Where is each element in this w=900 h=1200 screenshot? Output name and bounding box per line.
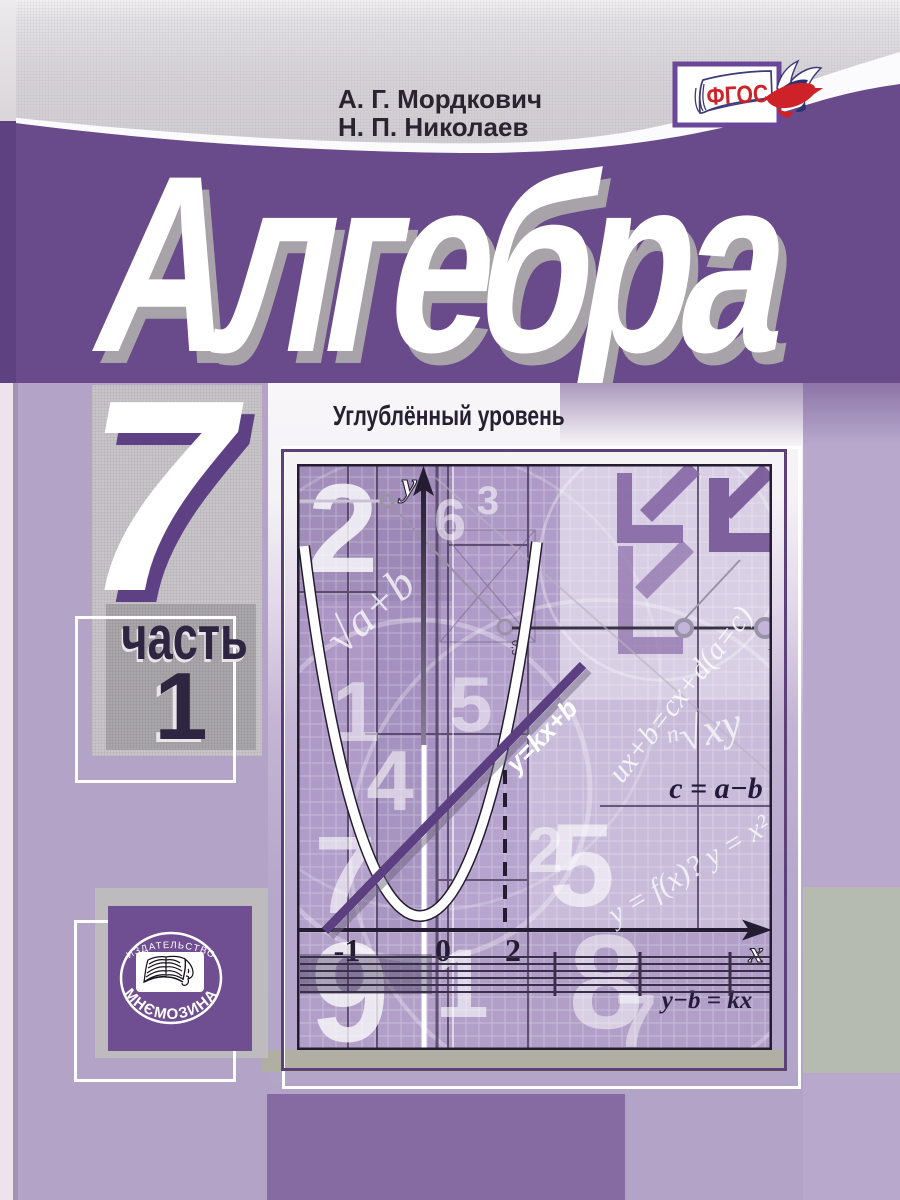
svg-text:0: 0 <box>435 932 451 968</box>
svg-text:c = a−b: c = a−b <box>669 772 763 805</box>
svg-text:7: 7 <box>615 979 657 1050</box>
svg-text:ФГОС: ФГОС <box>706 79 769 110</box>
svg-text:6: 6 <box>434 488 466 553</box>
svg-text:5: 5 <box>449 660 492 748</box>
svg-text:2: 2 <box>505 932 521 968</box>
